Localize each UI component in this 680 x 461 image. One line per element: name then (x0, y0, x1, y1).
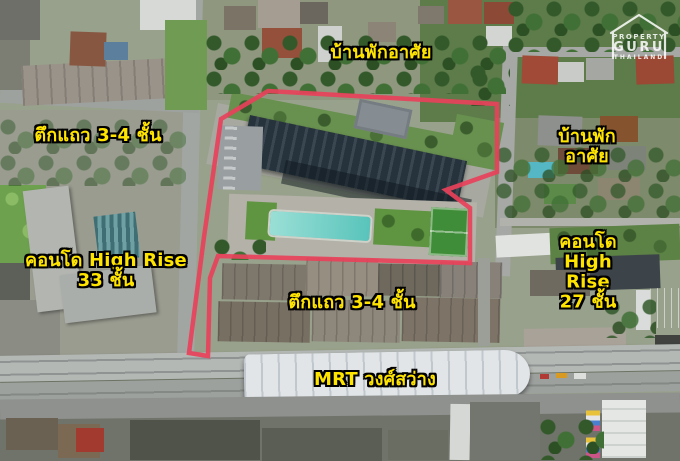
label-residential-top: บ้านพักอาศัย (330, 43, 431, 63)
property-guru-thailand-logo: PROPERTY GURU THAILAND (604, 12, 674, 62)
label-shophouse-left: ตึกแถว 3-4 ชั้น (34, 126, 161, 146)
logo-line-thailand: THAILAND (614, 54, 664, 61)
logo-line-guru: GURU (613, 40, 665, 55)
label-shophouse-center: ตึกแถว 3-4 ชั้น (288, 293, 415, 313)
site-boundary-overlay (0, 0, 680, 461)
label-condo-27-floors: คอนโด High Rise 27 ชั้น (542, 233, 634, 314)
label-mrt-wong-sawang: MRT วงศ์สว่าง (314, 370, 436, 390)
label-residential-right: บ้านพักอาศัย (541, 127, 634, 167)
site-boundary-polygon (189, 91, 497, 356)
label-condo-33-floors: คอนโด High Rise 33 ชั้น (25, 251, 187, 291)
aerial-photo: บ้านพักอาศัย ตึกแถว 3-4 ชั้น บ้านพักอาศั… (0, 0, 680, 461)
